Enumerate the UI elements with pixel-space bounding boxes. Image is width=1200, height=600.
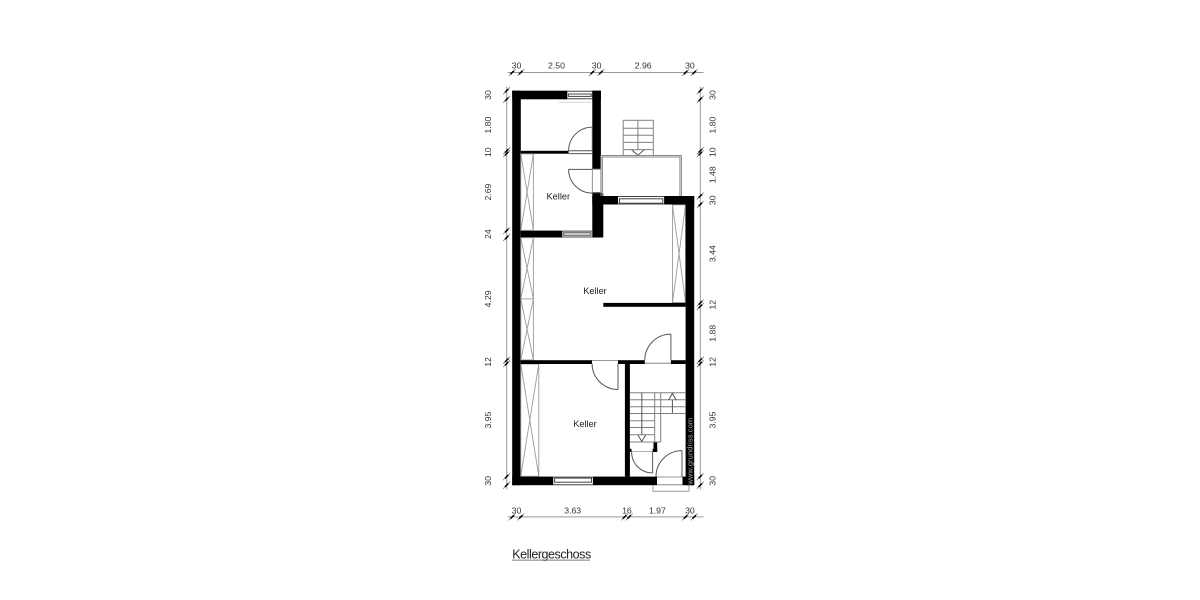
svg-text:30: 30 [483,90,493,100]
svg-text:16: 16 [622,505,632,515]
svg-text:30: 30 [707,476,717,486]
svg-text:30: 30 [512,60,522,70]
svg-text:www.grundriss.com: www.grundriss.com [685,418,694,486]
svg-text:30: 30 [483,476,493,486]
svg-text:10: 10 [483,147,493,157]
svg-text:30: 30 [685,60,695,70]
svg-text:12: 12 [707,357,717,367]
svg-text:Keller: Keller [547,192,571,202]
svg-text:Keller: Keller [573,419,597,429]
svg-text:2.96: 2.96 [635,60,652,70]
svg-text:10: 10 [707,147,717,157]
svg-text:12: 12 [707,300,717,310]
svg-text:1.88: 1.88 [707,325,717,342]
svg-text:30: 30 [707,90,717,100]
svg-text:3.95: 3.95 [483,411,493,428]
svg-text:3.63: 3.63 [564,505,581,515]
svg-text:30: 30 [592,60,602,70]
svg-text:12: 12 [483,357,493,367]
svg-text:1.48: 1.48 [707,166,717,183]
svg-text:2.69: 2.69 [483,183,493,200]
svg-text:3.95: 3.95 [707,411,717,428]
svg-text:30: 30 [707,195,717,205]
svg-text:24: 24 [483,229,493,239]
svg-text:3.44: 3.44 [707,245,717,262]
svg-text:1.80: 1.80 [707,116,717,133]
svg-text:Kellergeschoss: Kellergeschoss [512,548,591,562]
svg-text:1.97: 1.97 [649,505,666,515]
svg-text:1.80: 1.80 [483,116,493,133]
svg-text:4.29: 4.29 [483,290,493,307]
svg-text:2.50: 2.50 [548,60,565,70]
svg-text:Keller: Keller [583,286,607,296]
svg-text:30: 30 [512,505,522,515]
svg-text:30: 30 [685,505,695,515]
